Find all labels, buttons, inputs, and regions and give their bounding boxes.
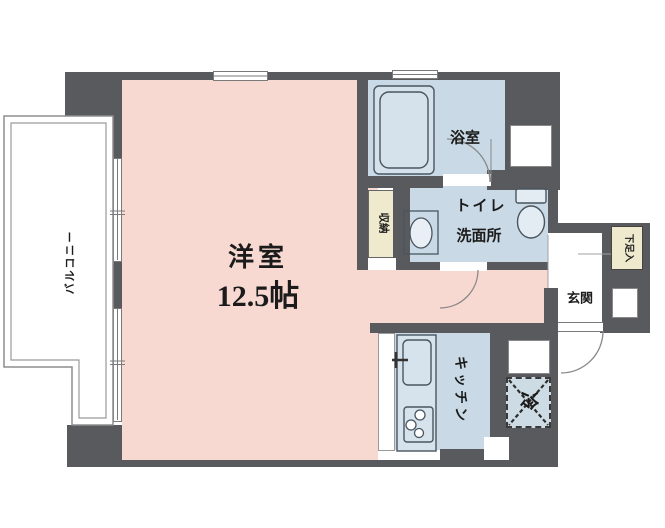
entrance-recess	[612, 288, 638, 318]
window-top	[213, 71, 268, 81]
kitchen-side-panel	[378, 333, 395, 451]
window-balcony-upper	[113, 158, 122, 262]
washroom-door-opening	[440, 262, 487, 271]
refrigerator-label: 冷	[519, 391, 538, 410]
wall-closet-washroom	[393, 185, 410, 262]
entrance-door-arc	[561, 331, 603, 373]
floor-plan: 洋室 12.5帖 浴室 トイレ 洗面所 玄関 キッチン 収納 下足入 バルコニー…	[0, 0, 665, 528]
wall-bath-bottom-right	[487, 170, 548, 190]
entrance-floor	[558, 233, 602, 322]
bathroom-door-threshold	[443, 174, 491, 186]
entrance-door-threshold	[558, 322, 603, 332]
shoe-cabinet-label: 下足入	[622, 234, 632, 263]
toilet-washroom-area	[410, 185, 548, 262]
wall-room-bath	[357, 80, 368, 270]
window-bathroom	[392, 70, 438, 79]
toilet-label: トイレ	[455, 200, 506, 215]
pipe-space-box	[510, 125, 552, 167]
kitchen-niche	[484, 437, 509, 460]
bathroom-area	[368, 80, 505, 178]
wall-left-seg1	[113, 116, 122, 160]
wall-top	[65, 72, 560, 80]
balcony-label: バルコニー	[66, 230, 77, 295]
wall-bottomleft-block	[67, 425, 122, 467]
kitchen-label: キッチン	[452, 356, 466, 424]
western-room-label: 洋室	[228, 245, 288, 271]
corridor-area	[357, 270, 548, 323]
western-room-size: 12.5帖	[217, 282, 300, 312]
wall-left-seg2	[113, 260, 122, 308]
balcony-outline	[4, 116, 113, 425]
utility-recess	[508, 340, 550, 374]
window-balcony-lower	[113, 308, 122, 422]
wall-bath-bottom-left	[368, 176, 443, 188]
wall-kitchen-top	[370, 323, 548, 333]
wall-bottom	[122, 460, 558, 467]
entrance-passage	[548, 233, 558, 288]
kitchen-area	[395, 333, 490, 450]
washroom-label: 洗面所	[456, 230, 501, 245]
storage-label: 収納	[377, 213, 388, 234]
entrance-label: 玄関	[567, 292, 593, 305]
closet-door-opening	[368, 258, 396, 270]
bathroom-label: 浴室	[450, 132, 480, 147]
wall-topleft-block	[65, 72, 122, 116]
